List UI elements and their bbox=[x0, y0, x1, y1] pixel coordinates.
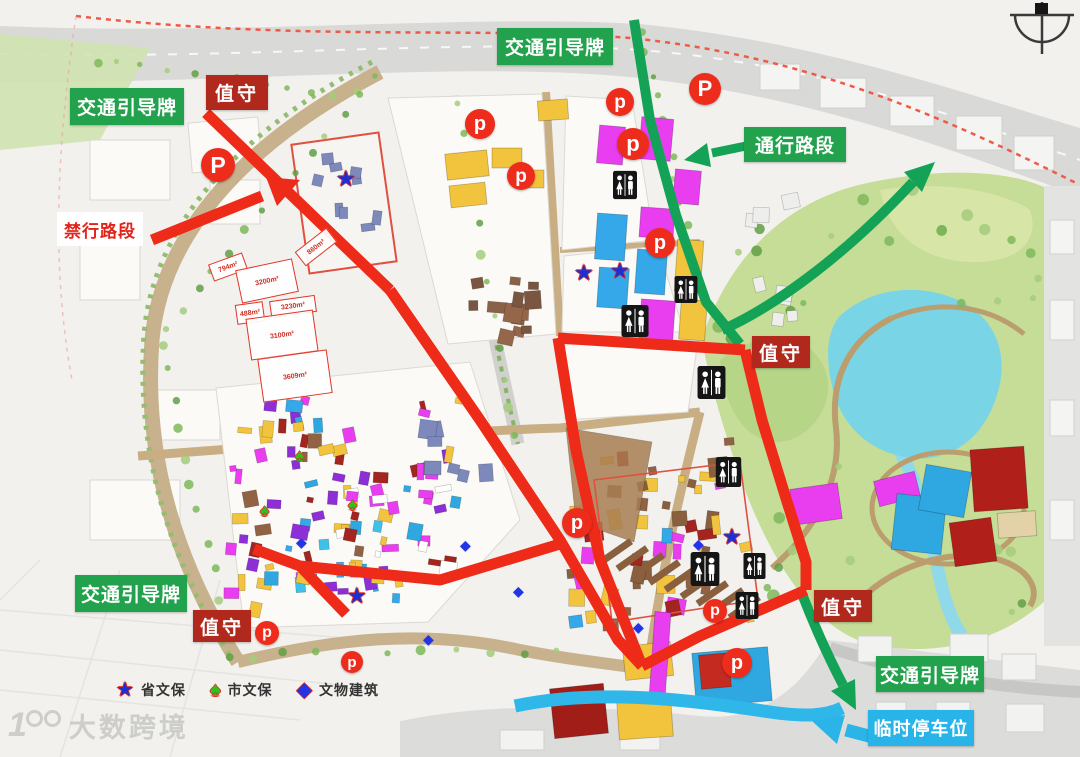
spade-icon: ♠ bbox=[210, 680, 221, 700]
watermark-text: 大数跨境 bbox=[69, 706, 189, 745]
watermark-ring-icon bbox=[44, 710, 61, 727]
compass-icon bbox=[1008, 0, 1076, 63]
base-map bbox=[0, 0, 1080, 757]
legend-item: ♠市文保 bbox=[210, 680, 273, 700]
legend: ★省文保♠市文保◆文物建筑 bbox=[116, 680, 379, 700]
watermark-ring-icon bbox=[26, 710, 43, 727]
map-canvas: 794m²3200m²860m²488m²3230m²3100m²3609m²P… bbox=[0, 0, 1080, 757]
legend-label: 市文保 bbox=[228, 680, 273, 700]
legend-item: ◆文物建筑 bbox=[297, 680, 379, 700]
legend-label: 文物建筑 bbox=[319, 680, 379, 700]
watermark-logo: 1 大数跨境 bbox=[8, 706, 189, 745]
diamond-icon: ◆ bbox=[297, 680, 312, 700]
star-icon: ★ bbox=[116, 680, 134, 700]
legend-label: 省文保 bbox=[141, 680, 186, 700]
legend-item: ★省文保 bbox=[116, 680, 186, 700]
watermark-mark: 1 bbox=[8, 706, 25, 745]
